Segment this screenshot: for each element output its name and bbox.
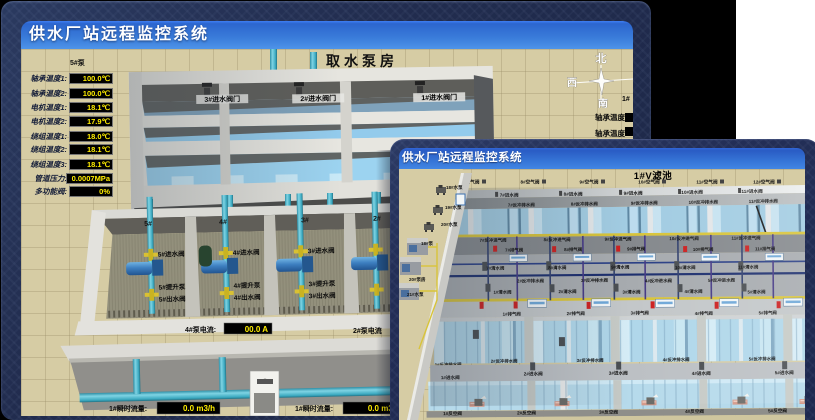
svg-text:西: 西: [567, 77, 577, 89]
svg-text:18#泵: 18#泵: [421, 240, 434, 247]
svg-text:0.0 m3/h: 0.0 m3/h: [183, 404, 215, 413]
svg-text:4#泵电流:: 4#泵电流:: [185, 325, 216, 334]
svg-text:12#空气阀: 12#空气阀: [753, 179, 775, 186]
svg-text:19#水泵: 19#水泵: [445, 204, 462, 211]
svg-text:8#空气阀: 8#空气阀: [521, 179, 540, 186]
svg-text:4#: 4#: [219, 219, 227, 226]
svg-text:20#水泵: 20#水泵: [441, 221, 458, 228]
svg-text:1#: 1#: [622, 96, 630, 103]
svg-text:3#: 3#: [301, 217, 309, 224]
svg-text:1#瞬时流量:: 1#瞬时流量:: [295, 404, 333, 413]
svg-text:00.0 A: 00.0 A: [245, 325, 268, 334]
svg-text:10#空气阀: 10#空气阀: [638, 179, 660, 186]
svg-text:轴承温度2: 轴承温度2: [595, 128, 629, 138]
svg-text:南: 南: [598, 97, 608, 110]
svg-text:18#水泵: 18#水泵: [446, 184, 463, 191]
svg-text:轴承温度1: 轴承温度1: [595, 112, 629, 122]
svg-text:北: 北: [596, 51, 607, 65]
svg-text:21#水泵: 21#水泵: [407, 291, 424, 298]
svg-text:11#空气阀: 11#空气阀: [696, 179, 718, 186]
svg-text:9#空气阀: 9#空气阀: [580, 179, 599, 186]
svg-text:20#泵房: 20#泵房: [409, 276, 426, 283]
svg-text:1#瞬时流量:: 1#瞬时流量:: [109, 404, 147, 413]
svg-text:5#: 5#: [144, 221, 152, 228]
